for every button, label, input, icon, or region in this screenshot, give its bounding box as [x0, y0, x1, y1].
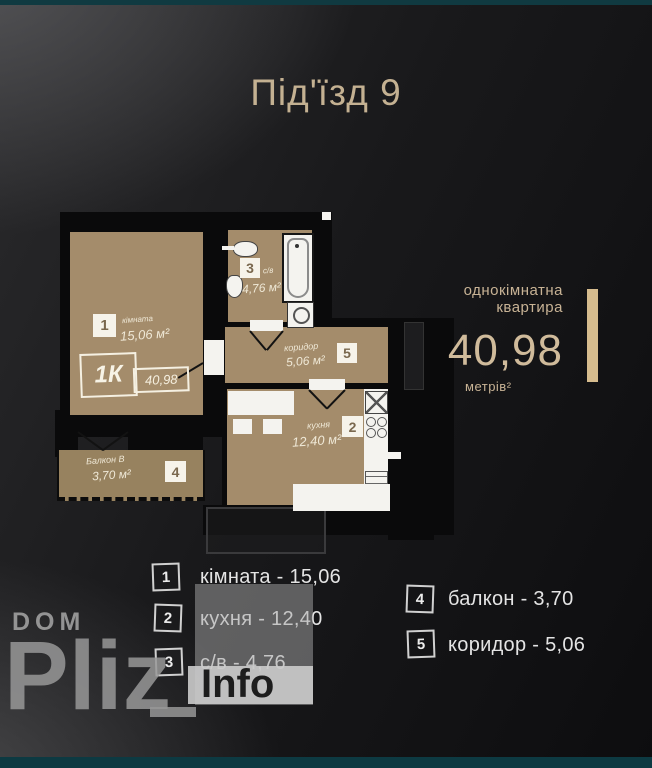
room-badge-corridor: 5 — [337, 343, 357, 363]
room-area-balcony: 3,70 м² — [92, 467, 132, 484]
watermark-info-label: Info — [188, 666, 313, 702]
gold-accent-bar — [587, 289, 598, 382]
watermark-info-box: Info — [188, 666, 313, 704]
chair-icon — [233, 419, 252, 434]
apartment-area-unit: метрів² — [420, 379, 563, 394]
sink-icon — [233, 241, 258, 257]
kitchen-sink-icon — [365, 391, 388, 414]
door-opening-living — [204, 340, 224, 375]
entry-landing-outline — [206, 507, 326, 554]
flyer-canvas: Під'їзд 9 — [0, 0, 652, 768]
room-badge-bathroom: 3 — [240, 258, 260, 278]
apartment-info-panel: однокімнатна квартира 40,98 метрів² — [420, 283, 563, 394]
room-badge-kitchen: 2 — [342, 416, 363, 437]
room-badge-balcony: 4 — [165, 461, 186, 482]
bottom-teal-strip — [0, 757, 652, 768]
room-area-corridor: 5,06 м² — [286, 353, 326, 370]
door-opening-bathroom — [250, 320, 283, 331]
bathtub-drain — [295, 244, 299, 248]
room-label-kitchen: кухня — [307, 419, 331, 431]
watermark-underscore — [150, 707, 196, 717]
page-title: Під'їзд 9 — [0, 72, 652, 114]
legend-label-5: коридор - 5,06 — [448, 634, 585, 657]
legend-badge-5: 5 — [407, 630, 436, 659]
sink-faucet — [222, 246, 234, 250]
kitchen-window — [388, 452, 401, 459]
legend-badge-1: 1 — [152, 563, 181, 592]
chair-icon — [263, 419, 282, 434]
door-opening-kitchen — [309, 379, 345, 390]
apartment-stamp: 1К 40,98 — [77, 347, 199, 399]
bathroom-window — [322, 212, 331, 220]
legend-badge-4: 4 — [406, 585, 435, 614]
legend-label-4: балкон - 3,70 — [448, 588, 574, 611]
room-label-bathroom: с/в — [263, 266, 274, 276]
bathtub-icon — [282, 233, 314, 303]
stamp-type-label: 1К — [79, 352, 138, 398]
washing-machine-icon — [287, 302, 314, 328]
room-area-bathroom: 4,76 м² — [242, 280, 282, 297]
stove-burner-icon — [366, 428, 376, 438]
apartment-total-area: 40,98 — [420, 326, 563, 376]
top-teal-strip — [0, 0, 652, 5]
watermark-brand-main: Pliz — [4, 630, 171, 722]
stamp-total-area: 40,98 — [133, 366, 190, 393]
apartment-type-line2: квартира — [420, 300, 563, 317]
kitchen-floor-strip — [293, 484, 390, 511]
toilet-icon — [226, 275, 243, 298]
stove-burner-icon — [377, 417, 387, 427]
washer-drum — [293, 307, 310, 324]
apartment-type-line1: однокімнатна — [420, 283, 563, 300]
stove-burner-icon — [377, 428, 387, 438]
stove-burner-icon — [366, 417, 376, 427]
wall-block-right — [388, 420, 434, 540]
floor-plan: 1 3 5 2 4 кімната 15,06 м² с/в 4,76 м² к… — [50, 205, 445, 557]
kitchen-table-icon — [228, 391, 294, 415]
room-badge-living: 1 — [93, 314, 116, 337]
